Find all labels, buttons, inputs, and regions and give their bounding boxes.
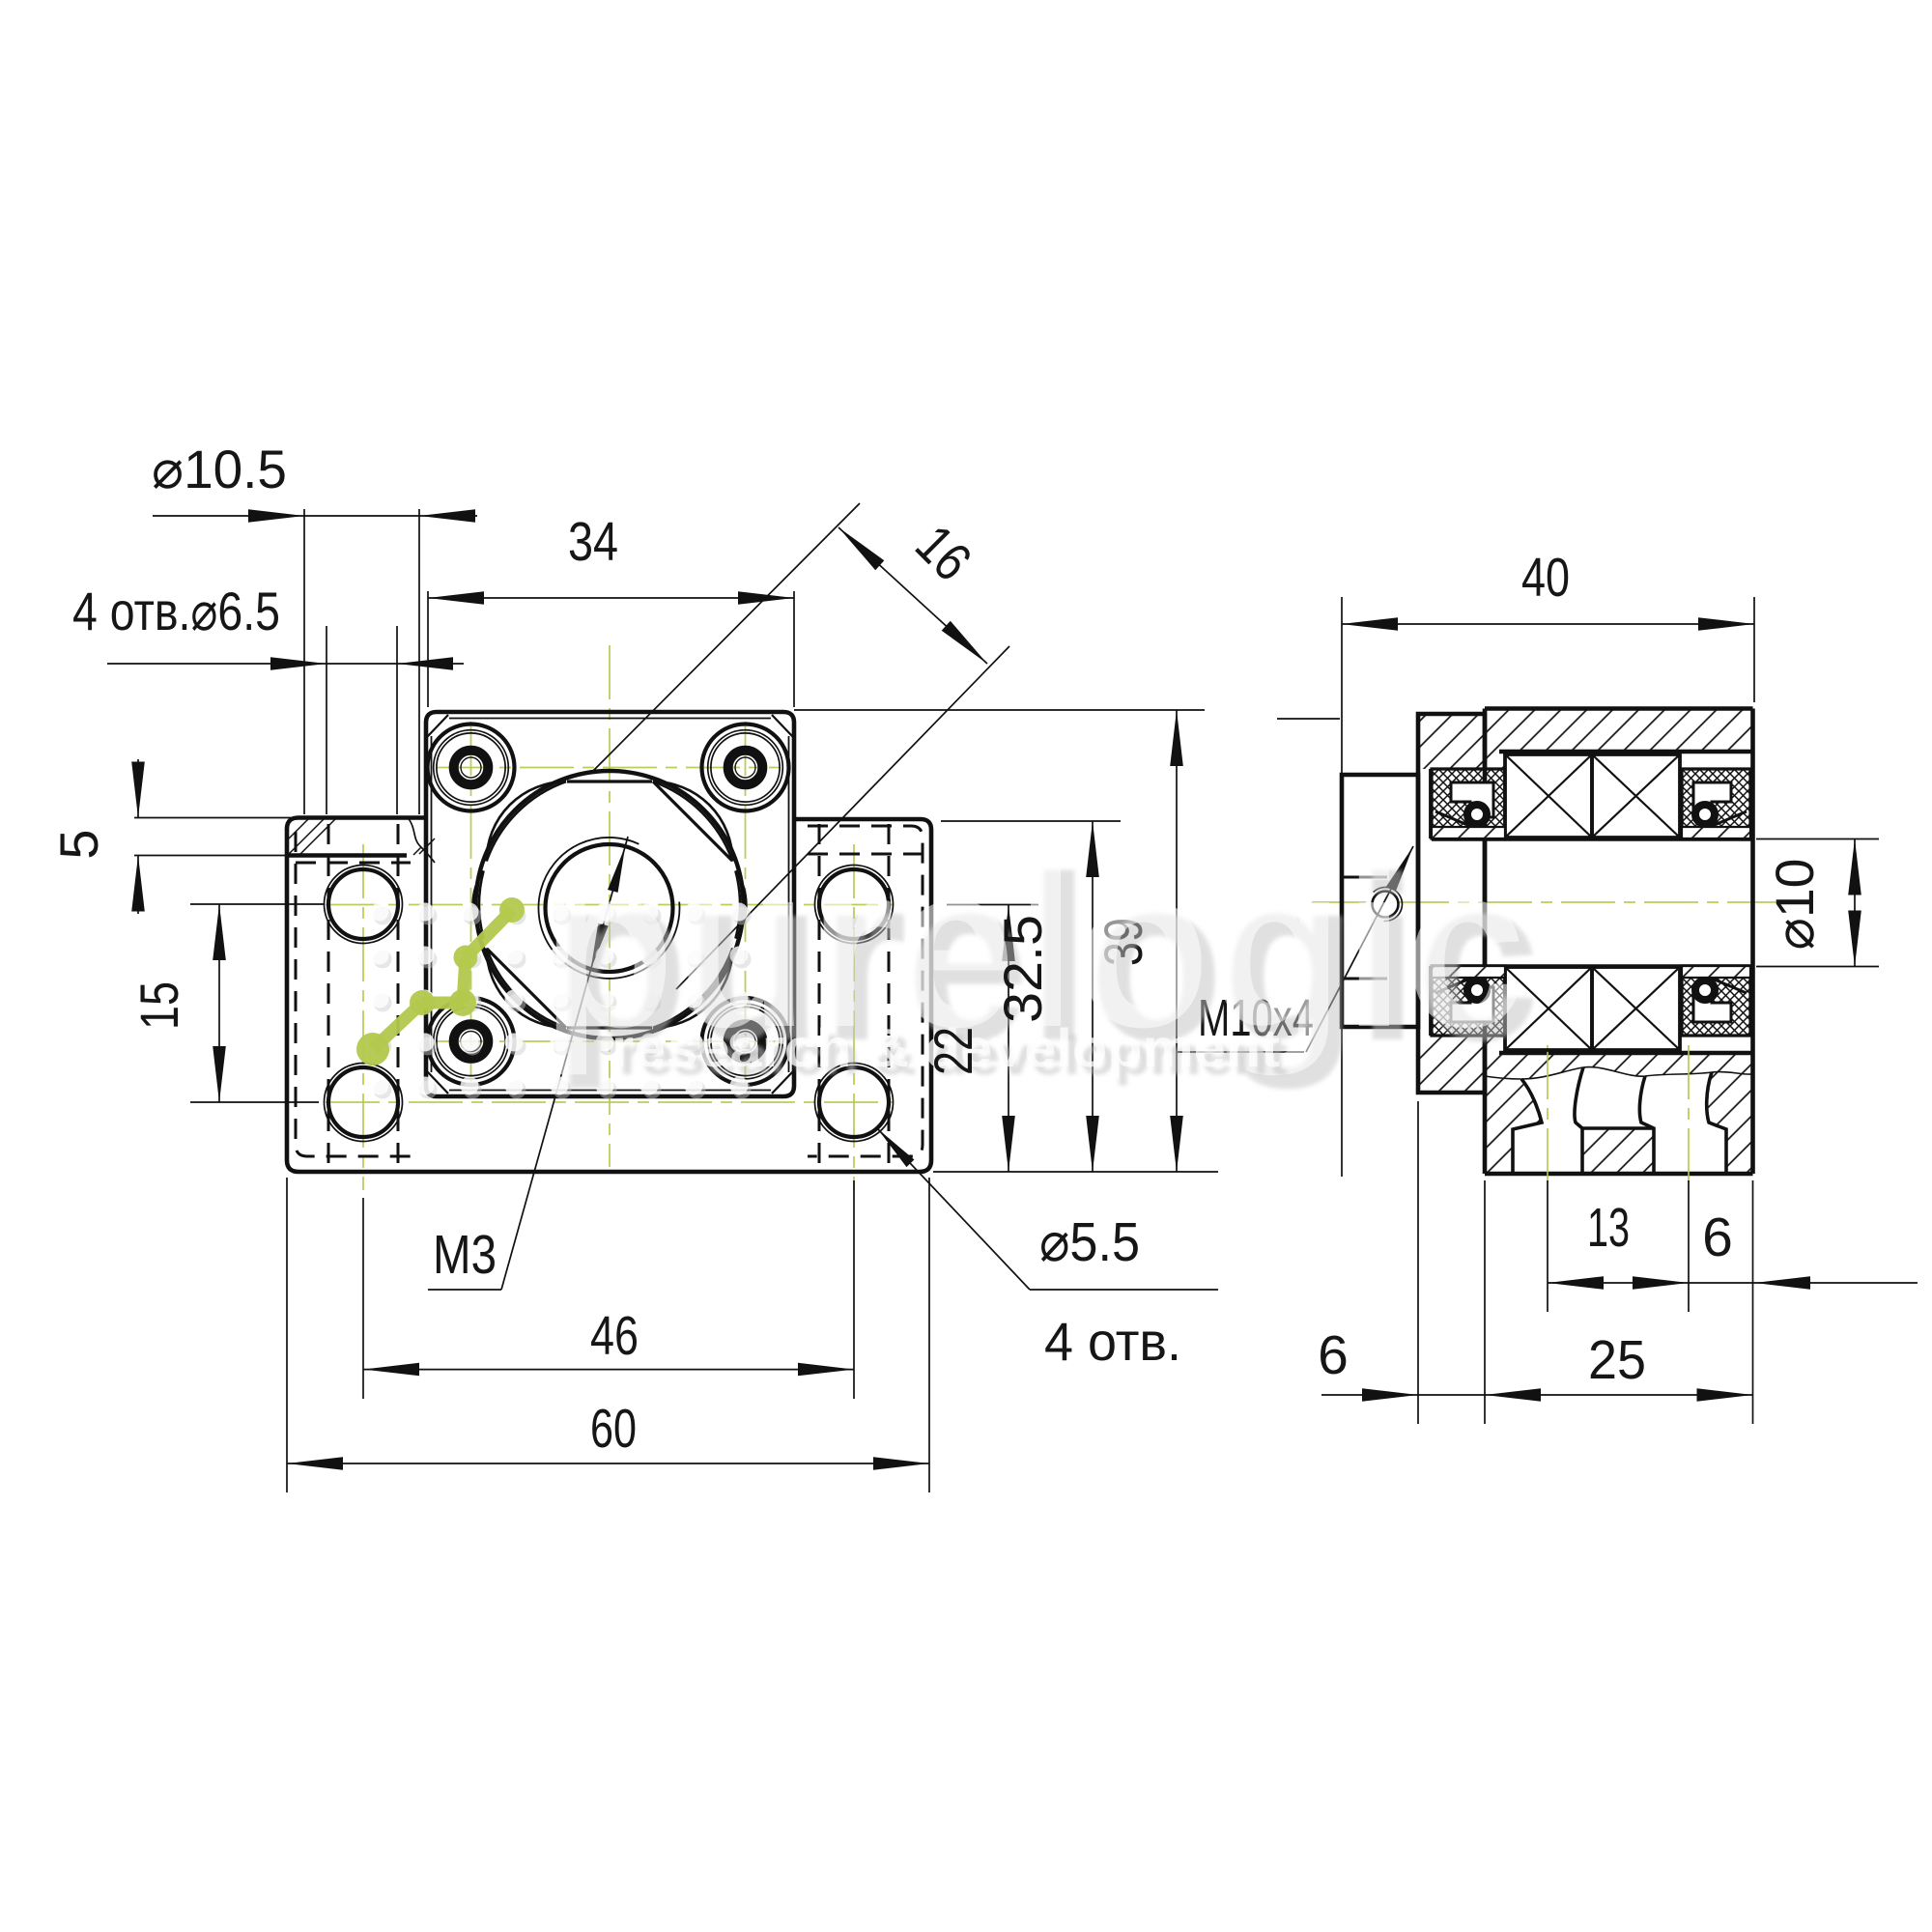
svg-text:4 отв.: 4 отв. [1044, 1311, 1181, 1372]
svg-text:15: 15 [128, 981, 189, 1030]
svg-text:6: 6 [1702, 1207, 1733, 1268]
svg-text:4 отв.⌀6.5: 4 отв.⌀6.5 [72, 581, 280, 641]
svg-text:5: 5 [48, 829, 109, 859]
svg-text:60: 60 [590, 1398, 637, 1460]
svg-text:32.5: 32.5 [992, 915, 1053, 1023]
svg-text:6: 6 [1318, 1324, 1349, 1386]
svg-text:34: 34 [568, 511, 618, 573]
svg-text:M3: M3 [433, 1224, 497, 1286]
svg-text:13: 13 [1587, 1197, 1630, 1259]
svg-text:46: 46 [590, 1305, 639, 1367]
svg-text:22: 22 [923, 1027, 983, 1075]
svg-text:25: 25 [1588, 1329, 1646, 1391]
svg-text:40: 40 [1521, 547, 1570, 609]
svg-text:⌀5.5: ⌀5.5 [1039, 1211, 1140, 1273]
svg-text:⌀10.5: ⌀10.5 [152, 439, 287, 499]
svg-text:⌀10: ⌀10 [1764, 859, 1825, 951]
